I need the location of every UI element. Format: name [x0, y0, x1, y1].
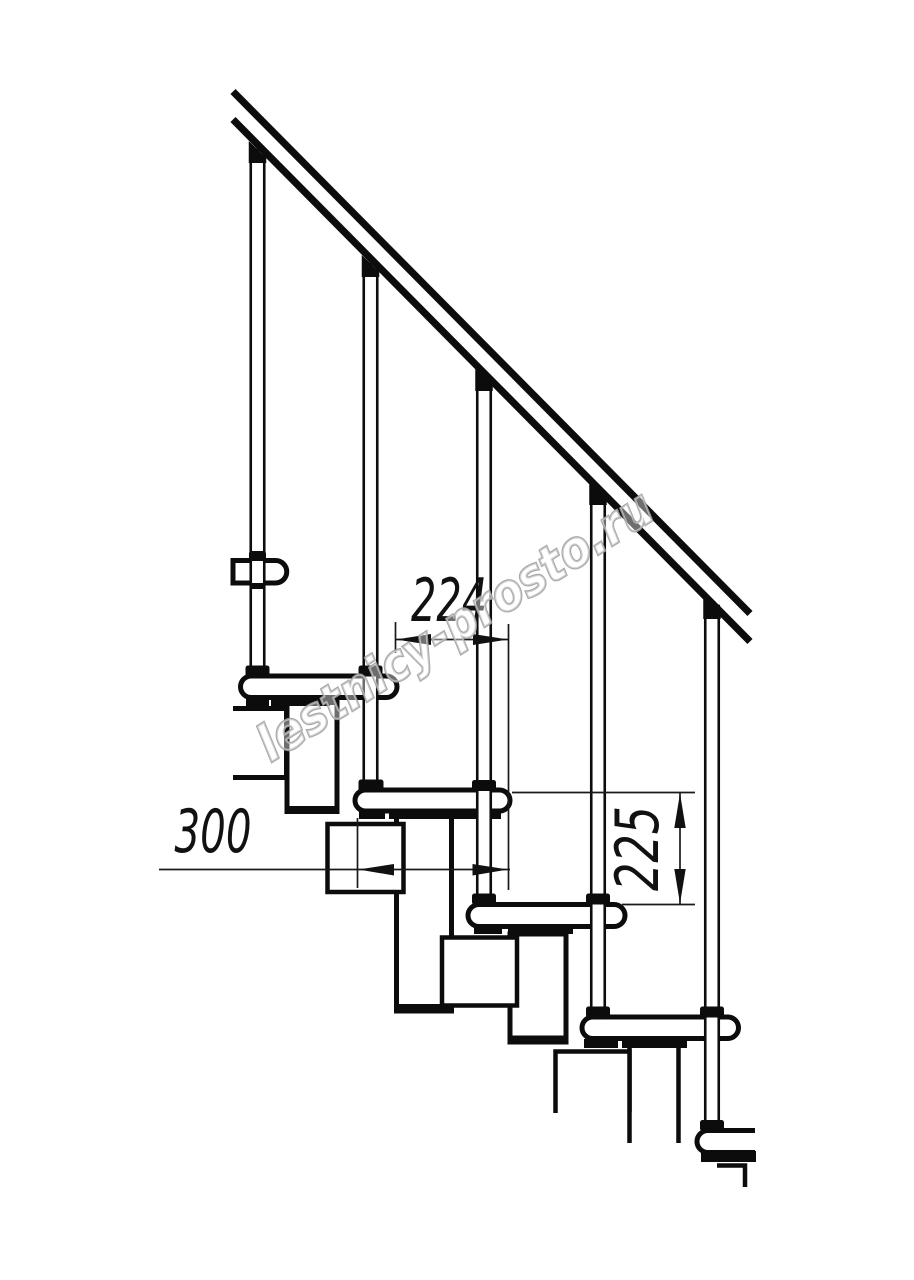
module-square-3 [442, 938, 517, 1006]
tread-4-mount [622, 1040, 687, 1048]
module-vertical-4 [630, 1044, 679, 1143]
baluster-5 [705, 606, 719, 1131]
collar [700, 1120, 724, 1131]
collar [251, 583, 264, 589]
dimension-tread-depth-label: 300 [175, 797, 252, 867]
collar [586, 1007, 610, 1018]
tread-5-lower-edge [717, 1166, 745, 1188]
baluster-1 [251, 150, 265, 677]
tread-5 [697, 1131, 755, 1153]
module-vertical-3-foot [508, 1036, 568, 1045]
arrowhead-down [674, 869, 685, 904]
module-square-2 [328, 824, 404, 892]
collar [359, 780, 384, 792]
drawing-page: { "drawing": { "type": "staircase-side-v… [0, 0, 914, 1280]
collar [472, 894, 496, 905]
collar [246, 666, 270, 677]
dimension-rise-label: 225 [603, 806, 673, 891]
arrowhead-up [674, 794, 685, 829]
collar [700, 1007, 724, 1018]
module-vertical-1-foot [285, 806, 340, 814]
collar [249, 551, 266, 561]
staircase-drawing: 224 300 225 lestnicy-prosto.ru [0, 0, 914, 1280]
collar [472, 780, 496, 791]
module-square-4 [556, 1052, 630, 1114]
collar [586, 894, 610, 905]
